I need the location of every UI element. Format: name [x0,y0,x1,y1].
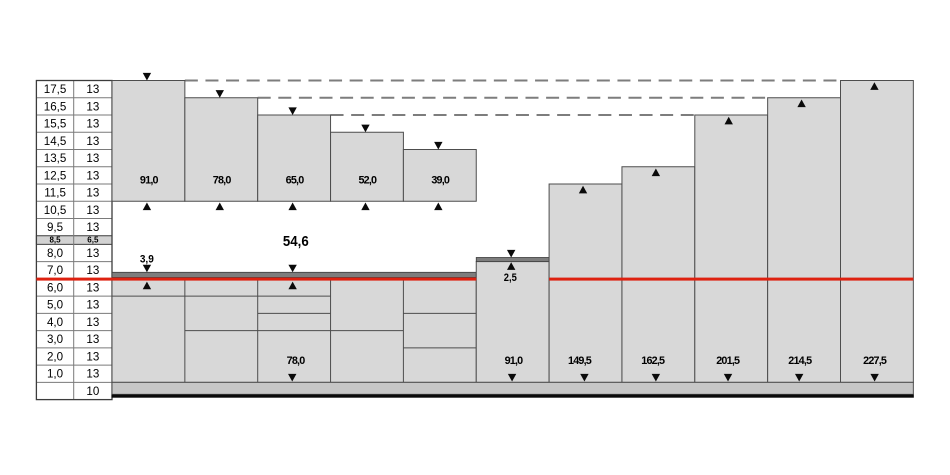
svg-text:13: 13 [86,333,99,346]
svg-text:13: 13 [86,152,99,165]
svg-text:214,5: 214,5 [788,355,812,367]
svg-text:13: 13 [86,299,99,312]
svg-text:13: 13 [86,187,99,200]
svg-text:17,5: 17,5 [44,83,67,96]
svg-text:227,5: 227,5 [863,355,887,367]
svg-text:13: 13 [86,221,99,234]
svg-text:15,5: 15,5 [44,118,67,131]
svg-text:52,0: 52,0 [358,175,377,187]
svg-text:13: 13 [86,368,99,381]
svg-text:8,0: 8,0 [47,247,63,260]
svg-text:13: 13 [86,281,99,294]
svg-text:12,5: 12,5 [44,169,67,182]
svg-text:91,0: 91,0 [140,175,159,187]
svg-text:13: 13 [86,316,99,329]
svg-text:5,0: 5,0 [47,299,63,312]
svg-text:54,6: 54,6 [283,233,309,250]
svg-text:13: 13 [86,100,99,113]
svg-text:6,5: 6,5 [87,235,99,244]
svg-text:14,5: 14,5 [44,135,67,148]
svg-text:149,5: 149,5 [568,355,592,367]
svg-text:9,5: 9,5 [47,221,63,234]
svg-text:13: 13 [86,264,99,277]
svg-text:13: 13 [86,83,99,96]
svg-text:65,0: 65,0 [286,175,305,187]
svg-text:78,0: 78,0 [287,355,306,367]
svg-text:13: 13 [86,169,99,182]
svg-text:91,0: 91,0 [505,355,524,367]
svg-text:2,5: 2,5 [504,272,517,284]
svg-text:16,5: 16,5 [44,100,67,113]
svg-text:1,0: 1,0 [47,368,63,381]
svg-text:13: 13 [86,350,99,363]
svg-text:8,5: 8,5 [49,235,61,244]
svg-text:201,5: 201,5 [716,355,740,367]
svg-text:162,5: 162,5 [641,355,665,367]
svg-text:13: 13 [86,247,99,260]
svg-text:2,0: 2,0 [47,350,63,363]
svg-text:11,5: 11,5 [44,187,66,200]
svg-text:13: 13 [86,118,99,131]
svg-text:7,0: 7,0 [47,264,63,277]
svg-text:3,9: 3,9 [140,254,154,266]
svg-text:6,0: 6,0 [47,281,63,294]
svg-text:10: 10 [86,385,99,398]
svg-text:13: 13 [86,204,99,217]
svg-text:13: 13 [86,135,99,148]
svg-text:10,5: 10,5 [44,204,67,217]
svg-text:4,0: 4,0 [47,316,63,329]
svg-text:78,0: 78,0 [213,175,232,187]
svg-text:13,5: 13,5 [44,152,67,165]
svg-text:39,0: 39,0 [431,175,450,187]
svg-text:3,0: 3,0 [47,333,63,346]
